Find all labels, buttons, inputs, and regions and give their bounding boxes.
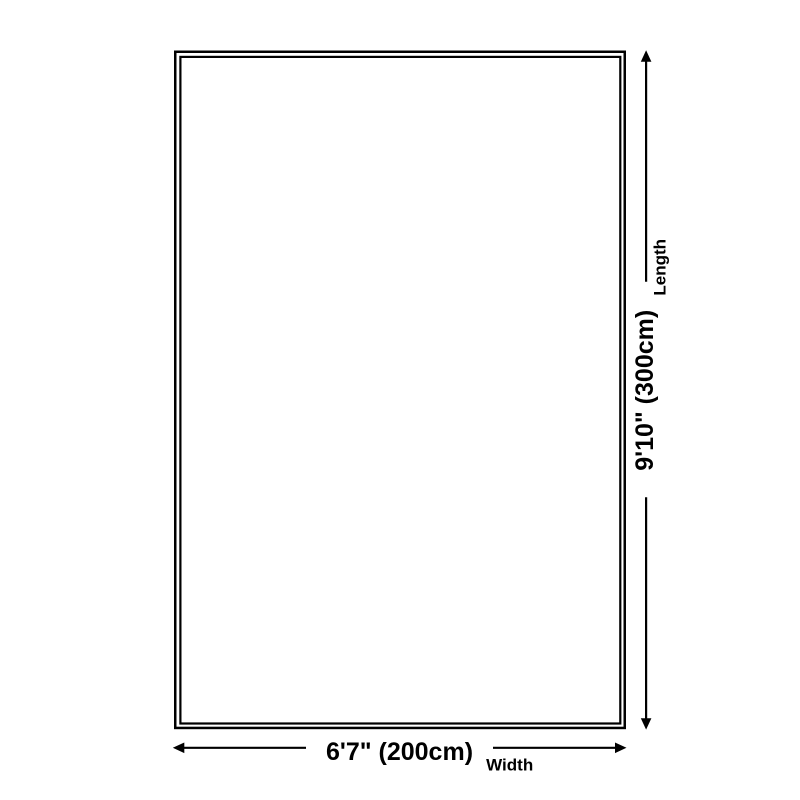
svg-text:Length: Length [651, 239, 670, 296]
svg-text:Width: Width [486, 756, 533, 775]
svg-text:6'7" (200cm): 6'7" (200cm) [326, 738, 473, 766]
svg-text:9'10" (300cm): 9'10" (300cm) [631, 310, 659, 471]
